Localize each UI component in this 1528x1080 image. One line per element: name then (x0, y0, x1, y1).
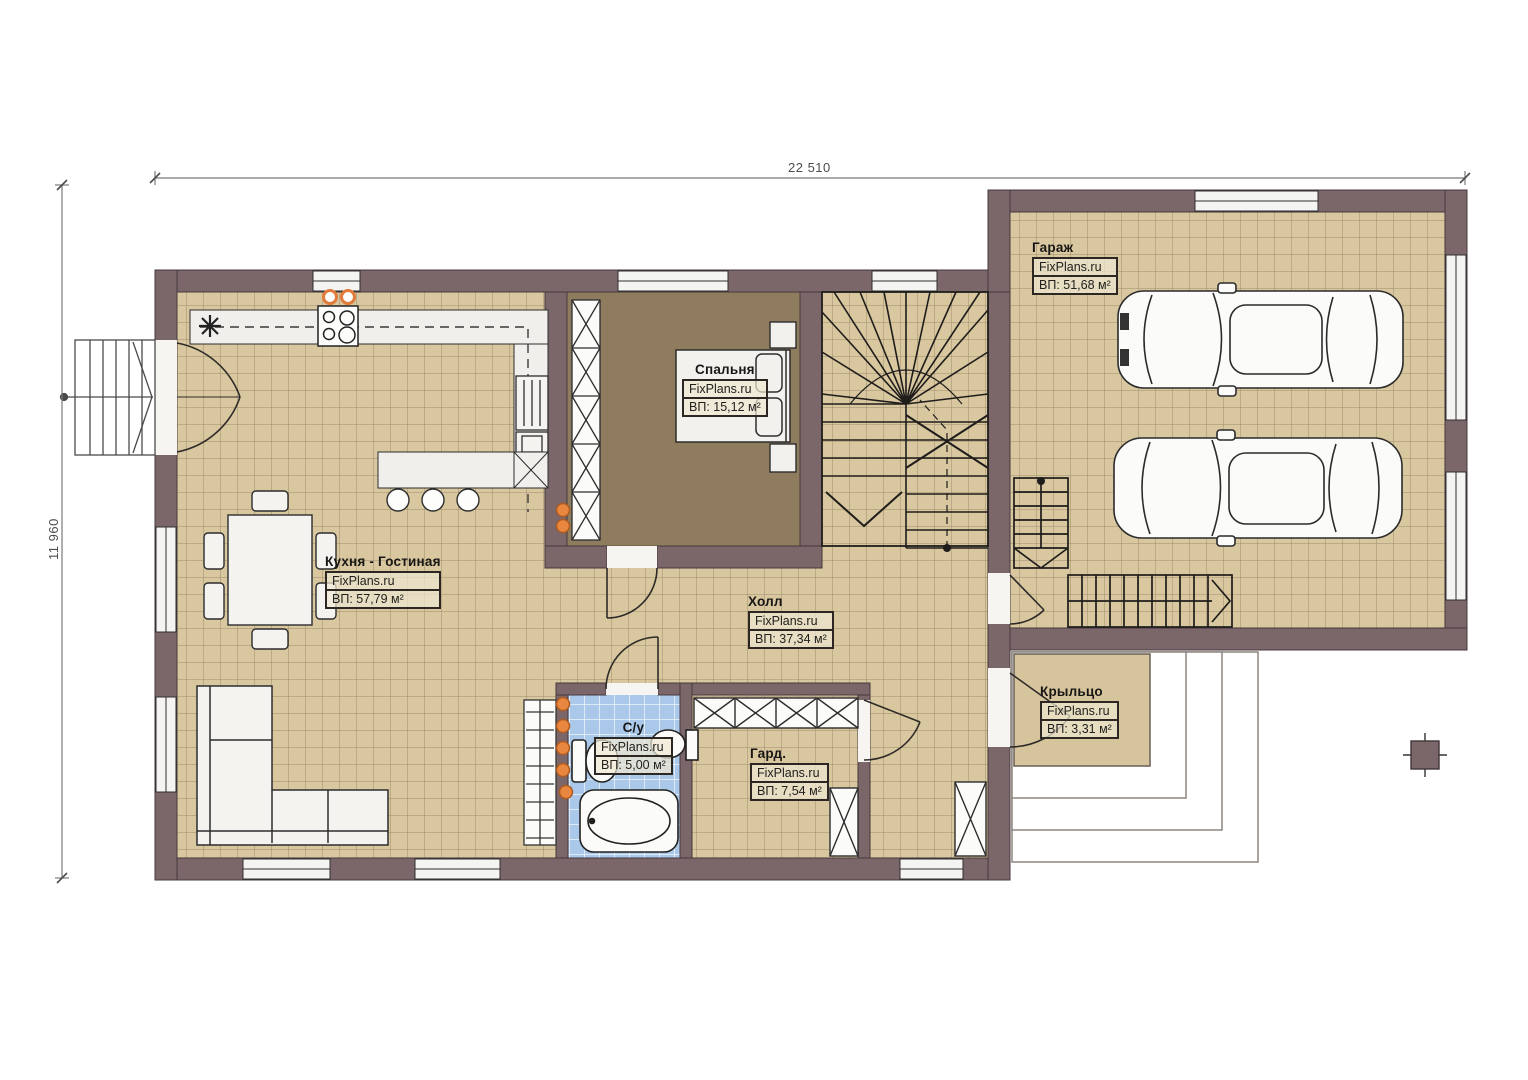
fridge-tall-unit (516, 376, 548, 456)
floor-plan-drawing (0, 0, 1528, 1080)
stove-icon (318, 306, 358, 346)
window (618, 271, 728, 291)
window (313, 271, 360, 291)
bathtub (580, 790, 678, 852)
chair (204, 583, 224, 619)
brand-box: FixPlans.ru (594, 737, 673, 757)
dining-table (228, 515, 312, 625)
window (872, 271, 937, 291)
window (415, 859, 500, 879)
dimension-width-label: 22 510 (788, 160, 831, 175)
wardrobe-corner-closet (830, 788, 858, 856)
chair (252, 491, 288, 511)
kitchen-island (378, 452, 515, 488)
room-name: С/у (594, 720, 673, 735)
room-name: Крыльцо (1040, 684, 1119, 699)
car (1118, 283, 1403, 396)
room-name: Кухня - Гостиная (325, 554, 441, 569)
brand-box: FixPlans.ru (748, 611, 834, 631)
room-label-kitchen-living: Кухня - Гостиная FixPlans.ru ВП: 57,79 м… (325, 554, 441, 609)
sink-icon (199, 315, 221, 337)
area-box: ВП: 3,31 м² (1040, 719, 1119, 739)
chair (252, 629, 288, 649)
window (156, 527, 176, 632)
area-box: ВП: 51,68 м² (1032, 275, 1118, 295)
garage-door (1446, 472, 1466, 600)
area-box: ВП: 57,79 м² (325, 589, 441, 609)
brand-box: FixPlans.ru (750, 763, 829, 783)
brand-box: FixPlans.ru (1032, 257, 1118, 277)
room-label-wardrobe: Гард. FixPlans.ru ВП: 7,54 м² (750, 746, 829, 801)
entrance-exterior-stairs (61, 340, 156, 455)
garage-door (1446, 255, 1466, 420)
dimension-height-label: 11 960 (46, 518, 61, 560)
window (156, 697, 176, 792)
window (243, 859, 330, 879)
bar-stools (387, 489, 479, 511)
room-label-bathroom: С/у FixPlans.ru ВП: 5,00 м² (594, 720, 673, 775)
room-name: Холл (748, 594, 834, 609)
wardrobe-closet-row (694, 698, 858, 728)
area-box: ВП: 5,00 м² (594, 755, 673, 775)
island-cabinet-x (514, 452, 548, 488)
window (1195, 191, 1318, 211)
area-box: ВП: 37,34 м² (748, 629, 834, 649)
brand-box: FixPlans.ru (325, 571, 441, 591)
car (1114, 430, 1402, 546)
nightstand (770, 444, 796, 472)
window (900, 859, 963, 879)
chair (204, 533, 224, 569)
room-name: Гард. (750, 746, 829, 761)
pillar (1403, 733, 1447, 777)
brand-box: FixPlans.ru (682, 379, 768, 399)
room-name: Гараж (1032, 240, 1118, 255)
area-box: ВП: 15,12 м² (682, 397, 768, 417)
hall-corner-closet (955, 782, 986, 856)
room-name: Спальня (682, 362, 768, 377)
area-box: ВП: 7,54 м² (750, 781, 829, 801)
room-label-bedroom: Спальня FixPlans.ru ВП: 15,12 м² (682, 362, 768, 417)
room-label-garage: Гараж FixPlans.ru ВП: 51,68 м² (1032, 240, 1118, 295)
room-label-porch: Крыльцо FixPlans.ru ВП: 3,31 м² (1040, 684, 1119, 739)
room-label-hall: Холл FixPlans.ru ВП: 37,34 м² (748, 594, 834, 649)
floor-plan-page: 22 510 11 960 Кухня - Гостиная FixPlans.… (0, 0, 1528, 1080)
bedroom-closet (572, 300, 600, 540)
brand-box: FixPlans.ru (1040, 701, 1119, 721)
nightstand (770, 322, 796, 348)
wall-radiator (524, 700, 556, 845)
